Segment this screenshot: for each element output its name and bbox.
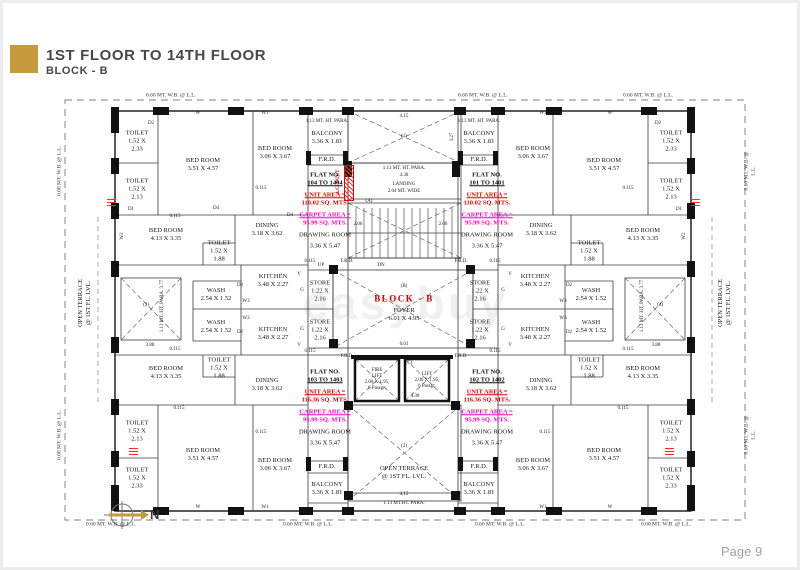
plan-label: TOILET 1.52 X 2.13: [126, 419, 149, 442]
plan-label: 0.115: [255, 186, 266, 192]
plan-label: 1.13 MT.HT. PARA.: [383, 501, 424, 507]
plan-label: BALCONY 3.36 X 1.81: [311, 130, 342, 146]
plan-label: 4.38: [400, 173, 409, 179]
flat-info-103: FLAT NO. 103 TO 1403 UNIT AREA = 116.36 …: [279, 368, 371, 448]
plan-label: F.R.D.: [454, 354, 467, 360]
carpet-area-value: 95.99 SQ. MTS.: [279, 416, 371, 424]
flat-range: 103 TO 1403: [279, 377, 371, 385]
plan-label: (4): [657, 303, 663, 309]
plan-label: BED ROOM 3.06 X 3.67: [516, 457, 550, 473]
plan-label: (B): [401, 284, 408, 290]
plan-label: F.R.D.: [340, 259, 353, 265]
plan-label: F.R.D.: [471, 156, 488, 164]
flat-info-101: FLAT NO. 101 TO 1401 UNIT AREA = 110.02 …: [441, 171, 533, 251]
plan-label: BLOCK - B: [374, 294, 434, 305]
plan-label: 1.13 MT. HT. PARA.: [458, 119, 501, 125]
plan-label: W2: [120, 232, 126, 239]
plan-label: 0.115: [255, 430, 266, 436]
plan-label: V: [508, 343, 512, 349]
plan-label: OPEN TERRACE @ 1ST FL. LVL.: [380, 465, 428, 481]
plan-label: WASH 2.54 X 1.52: [201, 287, 232, 303]
plan-label: W2: [682, 232, 688, 239]
carpet-area-value: 95.99 SQ. MTS.: [441, 219, 533, 227]
plan-label: TOILET 1.52 X 2.13: [660, 419, 683, 442]
flat-no-label: FLAT NO.: [279, 368, 371, 376]
north-label: N: [150, 507, 159, 522]
carpet-area-value: 95.99 SQ. MTS.: [441, 416, 533, 424]
plan-label: WASH 2.54 X 1.52: [201, 319, 232, 335]
red-hatch-mark: [665, 448, 674, 455]
unit-area-value: 116.36 SQ. MTS.: [279, 397, 371, 405]
plan-label: 0.60 MT. W.B. @ L.L.: [623, 93, 673, 100]
flat-info-102: FLAT NO. 102 TO 1402 UNIT AREA = 116.36 …: [441, 368, 533, 448]
plan-label: V: [297, 343, 301, 349]
plan-label: BALCONY 3.36 X 1.81: [463, 130, 494, 146]
plan-label: BED ROOM 3.51 X 4.57: [587, 447, 621, 463]
plan-label: BALCONY 3.36 X 1.81: [311, 481, 342, 497]
plan-label: D1: [128, 207, 134, 213]
plan-label: G: [300, 288, 304, 294]
plan-label: DN: [377, 263, 384, 269]
plan-label: 0.115: [173, 406, 184, 412]
plan-label: OPEN TERRACE @ 1ST FL. LVL.: [77, 279, 93, 327]
plan-label: BALCONY 3.36 X 1.81: [463, 481, 494, 497]
plan-label: TOILET 1.52 X 1.88: [208, 239, 231, 262]
plan-label: KITCHEN 3.48 X 2.27: [520, 273, 551, 289]
plan-label: 3.88: [146, 343, 155, 349]
plan-label: 4.15: [400, 114, 409, 120]
plan-label: D2: [237, 283, 243, 289]
plan-label: W1: [261, 111, 268, 117]
plan-label: W3: [242, 299, 249, 305]
plan-label: 1.13 MT. HT. PARA. 3.77: [640, 280, 646, 333]
red-hatch-mark: [129, 448, 138, 455]
plan-label: TOILET 1.52 X 2.33: [660, 129, 683, 152]
plan-label: BED ROOM 4.13 X 3.35: [149, 365, 183, 381]
plan-label: BED ROOM 4.13 X 3.35: [149, 227, 183, 243]
plan-label: 0.115: [304, 259, 315, 265]
plan-label: 0.60 MT. W.B. @ L.L.: [57, 410, 64, 460]
plan-label: D4: [213, 206, 219, 212]
drawing-room-label: DRAWING ROOM: [279, 231, 371, 239]
plan-label: 0.60 MT. W.B. @ L.L.: [743, 412, 756, 459]
plan-label: 0.60 MT. W.B. @ L.L.: [86, 522, 136, 529]
plan-label: STORE 1.22 X 2.16: [310, 318, 330, 341]
plan-label: W: [608, 111, 613, 117]
plan-label: (1): [401, 134, 407, 140]
plan-label: 6.01 X 4.95: [389, 315, 420, 323]
plan-label: D2: [148, 121, 154, 127]
plan-label: STORE 1.22 X 2.16: [470, 279, 490, 302]
plan-label: F.R.D.: [471, 463, 488, 471]
unit-area-label: UNIT AREA =: [441, 191, 533, 199]
flat-no-label: FLAT NO.: [441, 171, 533, 179]
plan-label: TOILET 1.52 X 2.33: [126, 466, 149, 489]
plan-label: WASH 2.54 X 1.52: [576, 319, 607, 335]
plan-label: BED ROOM 3.51 X 4.57: [186, 447, 220, 463]
drawing-room-label: DRAWING ROOM: [279, 428, 371, 436]
plan-label: 0.115: [169, 214, 180, 220]
plan-label: F.R.D.: [319, 156, 336, 164]
plan-label: KITCHEN 3.48 X 2.27: [258, 326, 289, 342]
brochure-page: 1ST FLOOR TO 14TH FLOOR BLOCK - B easybu…: [0, 0, 800, 570]
flat-no-label: FLAT NO.: [441, 368, 533, 376]
unit-area-label: UNIT AREA =: [279, 191, 371, 199]
drawing-room-dims: 3.36 X 5.47: [279, 242, 371, 250]
plan-label: TOILET 1.52 X 1.88: [578, 239, 601, 262]
plan-label: 0.60 MT. W.B. @ L.L.: [146, 93, 196, 100]
plan-label: TOILET 1.52 X 2.33: [126, 129, 149, 152]
plan-label: STORE 1.22 X 2.16: [310, 279, 330, 302]
plan-label: V: [297, 272, 301, 278]
plan-label: 1.13 MT. HT. PARA. 3.77: [160, 280, 166, 333]
carpet-area-label: CARPET AREA =: [279, 408, 371, 416]
plan-label: UP: [318, 263, 324, 269]
plan-label: 0.60 MT. W.B. @ L.L.: [458, 93, 508, 100]
unit-area-label: UNIT AREA =: [441, 388, 533, 396]
plan-label: TOILET 1.52 X 1.88: [208, 356, 231, 379]
plan-label: KITCHEN 3.48 X 2.27: [258, 273, 289, 289]
unit-area-value: 110.02 SQ. MTS.: [441, 200, 533, 208]
flat-info-104: FLAT NO. 104 TO 1404 UNIT AREA = 110.02 …: [279, 171, 371, 251]
drawing-room-dims: 3.36 X 5.47: [441, 439, 533, 447]
plan-label: KITCHEN 3.48 X 2.27: [520, 326, 551, 342]
page-subtitle: BLOCK - B: [46, 65, 108, 77]
plan-label: F.R.D.: [340, 354, 353, 360]
plan-label: W: [608, 505, 613, 511]
plan-label: TOILET 1.52 X 2.13: [660, 177, 683, 200]
carpet-area-value: 95.99 SQ. MTS.: [279, 219, 371, 227]
flat-range: 104 TO 1404: [279, 180, 371, 188]
plan-label: W: [196, 111, 201, 117]
plan-label: BED ROOM 3.51 X 4.57: [587, 157, 621, 173]
plan-label: W1: [539, 111, 546, 117]
plan-label: G: [501, 288, 505, 294]
plan-label: W1: [261, 505, 268, 511]
drawing-room-label: DRAWING ROOM: [441, 231, 533, 239]
flat-no-label: FLAT NO.: [279, 171, 371, 179]
plan-label: STORE 1.22 X 2.16: [470, 318, 490, 341]
plan-label: D2: [237, 330, 243, 336]
plan-label: F.R.D.: [454, 259, 467, 265]
plan-label: W: [196, 505, 201, 511]
page-title: 1ST FLOOR TO 14TH FLOOR: [46, 47, 266, 64]
red-hatch-mark: [107, 199, 116, 206]
drawing-room-dims: 3.36 X 5.47: [279, 439, 371, 447]
drawing-room-label: DRAWING ROOM: [441, 428, 533, 436]
plan-label: G: [300, 327, 304, 333]
plan-label: BED ROOM 4.13 X 3.35: [626, 365, 660, 381]
plan-label: DINING 3.18 X 3.62: [252, 222, 283, 238]
plan-label: D2: [566, 283, 572, 289]
plan-label: D1: [676, 207, 682, 213]
plan-label: BED ROOM 4.13 X 3.35: [626, 227, 660, 243]
plan-label: 0.115: [622, 347, 633, 353]
plan-label: W3: [242, 316, 249, 322]
plan-label: W1: [539, 505, 546, 511]
plan-label: 0.60 MT. W.B. @ L.L.: [743, 148, 756, 195]
plan-label: BED ROOM 3.06 X 3.67: [516, 145, 550, 161]
plan-label: D2: [655, 121, 661, 127]
plan-label: 0.115: [539, 430, 550, 436]
plan-label: 0.60 MT. W.B. @ L.L.: [283, 522, 333, 529]
carpet-area-label: CARPET AREA =: [441, 211, 533, 219]
plan-label: 2.04 MT. WIDE: [388, 189, 421, 195]
plan-label: 6.01: [400, 342, 409, 348]
plan-label: D2: [566, 330, 572, 336]
red-hatch-mark: [691, 199, 700, 206]
brand-logo-square: [10, 45, 38, 73]
plan-label: 4.15: [400, 492, 409, 498]
plan-label: BED ROOM 3.06 X 3.67: [258, 145, 292, 161]
plan-label: LIFT 2.00 X 1.95, 6 Passgr.: [415, 372, 440, 390]
plan-label: OPEN TERRACE @ 1ST FL. LVL.: [717, 279, 733, 327]
plan-label: 0.60 MT. W.B. @ L.L.: [57, 146, 64, 196]
plan-label: TOILET 1.52 X 2.13: [126, 177, 149, 200]
unit-area-value: 110.02 SQ. MTS.: [279, 200, 371, 208]
plan-label: 0.115: [489, 259, 500, 265]
flat-range: 101 TO 1401: [441, 180, 533, 188]
plan-label: 0.115: [304, 349, 315, 355]
plan-label: FOYER: [393, 307, 414, 315]
drawing-room-dims: 3.36 X 5.47: [441, 242, 533, 250]
plan-label: BED ROOM 3.06 X 3.67: [258, 457, 292, 473]
plan-label: 0.115: [622, 186, 633, 192]
plan-label: LANDING: [393, 182, 416, 188]
plan-label: 0.60 MT. W.B. @ L.L.: [475, 522, 525, 529]
carpet-area-label: CARPET AREA =: [279, 211, 371, 219]
plan-label: TOILET 1.52 X 2.33: [660, 466, 683, 489]
flat-range: 102 TO 1402: [441, 377, 533, 385]
plan-label: (C): [406, 361, 413, 367]
plan-label: 0.115: [489, 349, 500, 355]
plan-label: DINING 3.18 X 3.62: [252, 377, 283, 393]
plan-label: (2): [401, 444, 407, 450]
carpet-area-label: CARPET AREA =: [441, 408, 533, 416]
plan-label: W3: [559, 299, 566, 305]
plan-label: BED ROOM 3.51 X 4.57: [186, 157, 220, 173]
unit-area-value: 116.36 SQ. MTS.: [441, 397, 533, 405]
plan-label: W3: [559, 316, 566, 322]
plan-label: 1.13 MT. HT. PARA.: [383, 166, 426, 172]
page-number: Page 9: [721, 544, 762, 559]
plan-label: WASH 2.54 X 1.52: [576, 287, 607, 303]
plan-label: 4.30: [411, 394, 420, 400]
plan-label: G: [501, 327, 505, 333]
plan-label: 3.27: [450, 133, 456, 142]
plan-label: F.R.D.: [319, 463, 336, 471]
plan-label: 0.115: [617, 406, 628, 412]
plan-label: V: [508, 272, 512, 278]
plan-label: 0.115: [169, 347, 180, 353]
plan-label: 1.13 MT. HT. PARA.: [306, 119, 349, 125]
unit-area-label: UNIT AREA =: [279, 388, 371, 396]
plan-label: 0.60 MT. W.B. @ L.L.: [641, 522, 691, 529]
plan-label: (3): [143, 303, 149, 309]
plan-label: TOILET 1.52 X 1.88: [578, 356, 601, 379]
plan-label: 3.88: [652, 343, 661, 349]
